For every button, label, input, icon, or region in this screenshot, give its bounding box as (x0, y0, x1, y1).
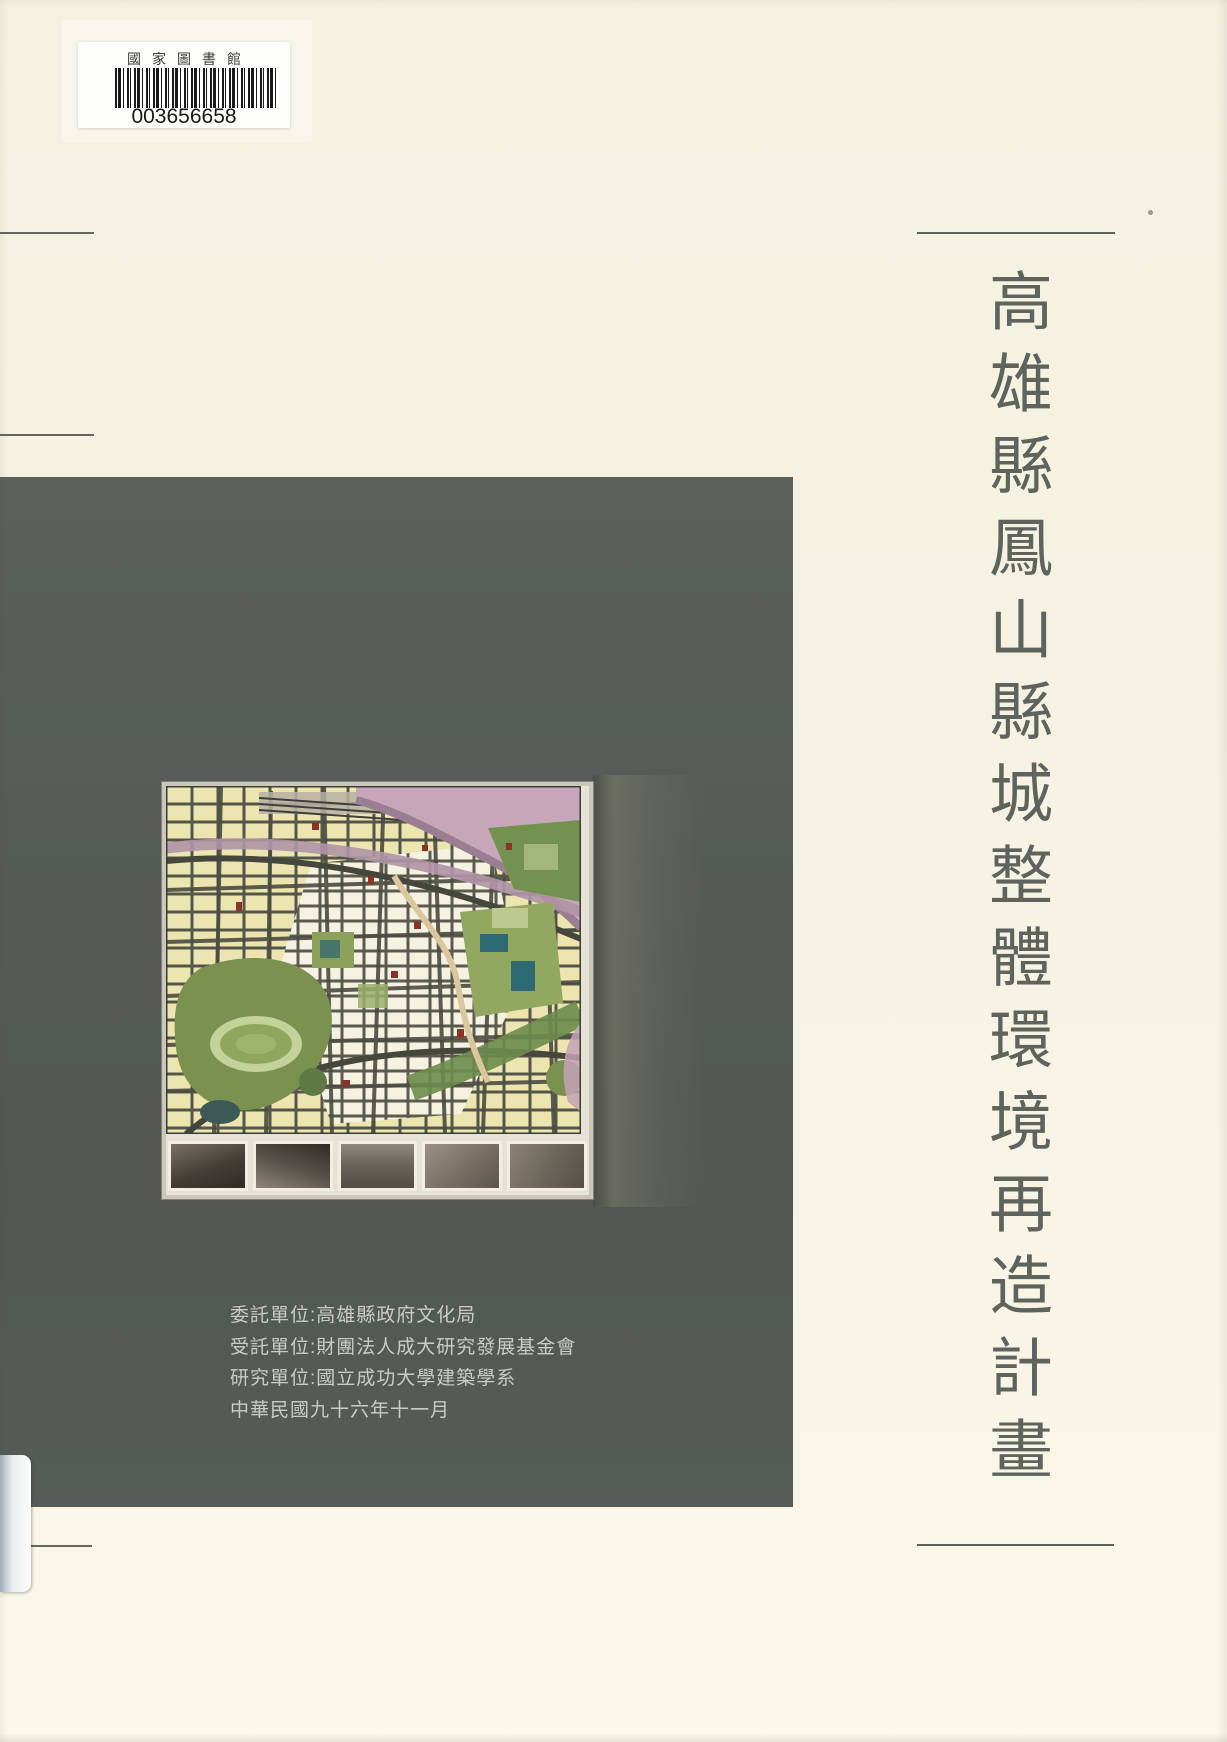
photo-strip (166, 1138, 589, 1195)
photo-thumbnail (168, 1141, 248, 1191)
map-shadow (593, 775, 705, 1207)
photo-thumbnail (422, 1141, 502, 1191)
title-rule-top (917, 232, 1115, 234)
barcode-number: 003656658 (78, 105, 290, 129)
credit-line-date: 中華民國九十六年十一月 (230, 1395, 650, 1427)
scan-speck (1148, 210, 1153, 215)
credit-line-trustee: 受託單位:財團法人成大研究發展基金會 (230, 1332, 650, 1364)
crop-mark-left-upper (0, 232, 94, 234)
cover-title: 高雄縣鳳山縣城整體環境再造計畫 (979, 268, 1051, 1528)
map-illustration (166, 786, 581, 1134)
credit-line-research-unit: 研究單位:國立成功大學建築學系 (230, 1363, 650, 1395)
title-rule-bottom (917, 1544, 1114, 1546)
photo-thumbnail (338, 1141, 418, 1191)
map-image (162, 782, 593, 1199)
spine-sticker (0, 1455, 31, 1592)
crop-mark-bottom-left (30, 1545, 92, 1547)
library-barcode-label: 國家圖書館 003656658 (78, 42, 290, 128)
crop-mark-left-lower (0, 434, 94, 436)
barcode-icon (115, 68, 278, 108)
photo-thumbnail (253, 1141, 333, 1191)
library-name-text: 國家圖書館 (78, 49, 290, 69)
credits-block: 委託單位:高雄縣政府文化局 受託單位:財團法人成大研究發展基金會 研究單位:國立… (230, 1300, 650, 1426)
credit-line-commissioner: 委託單位:高雄縣政府文化局 (230, 1300, 650, 1332)
book-cover-scan: 國家圖書館 003656658 (0, 0, 1227, 1742)
photo-thumbnail (507, 1141, 587, 1191)
